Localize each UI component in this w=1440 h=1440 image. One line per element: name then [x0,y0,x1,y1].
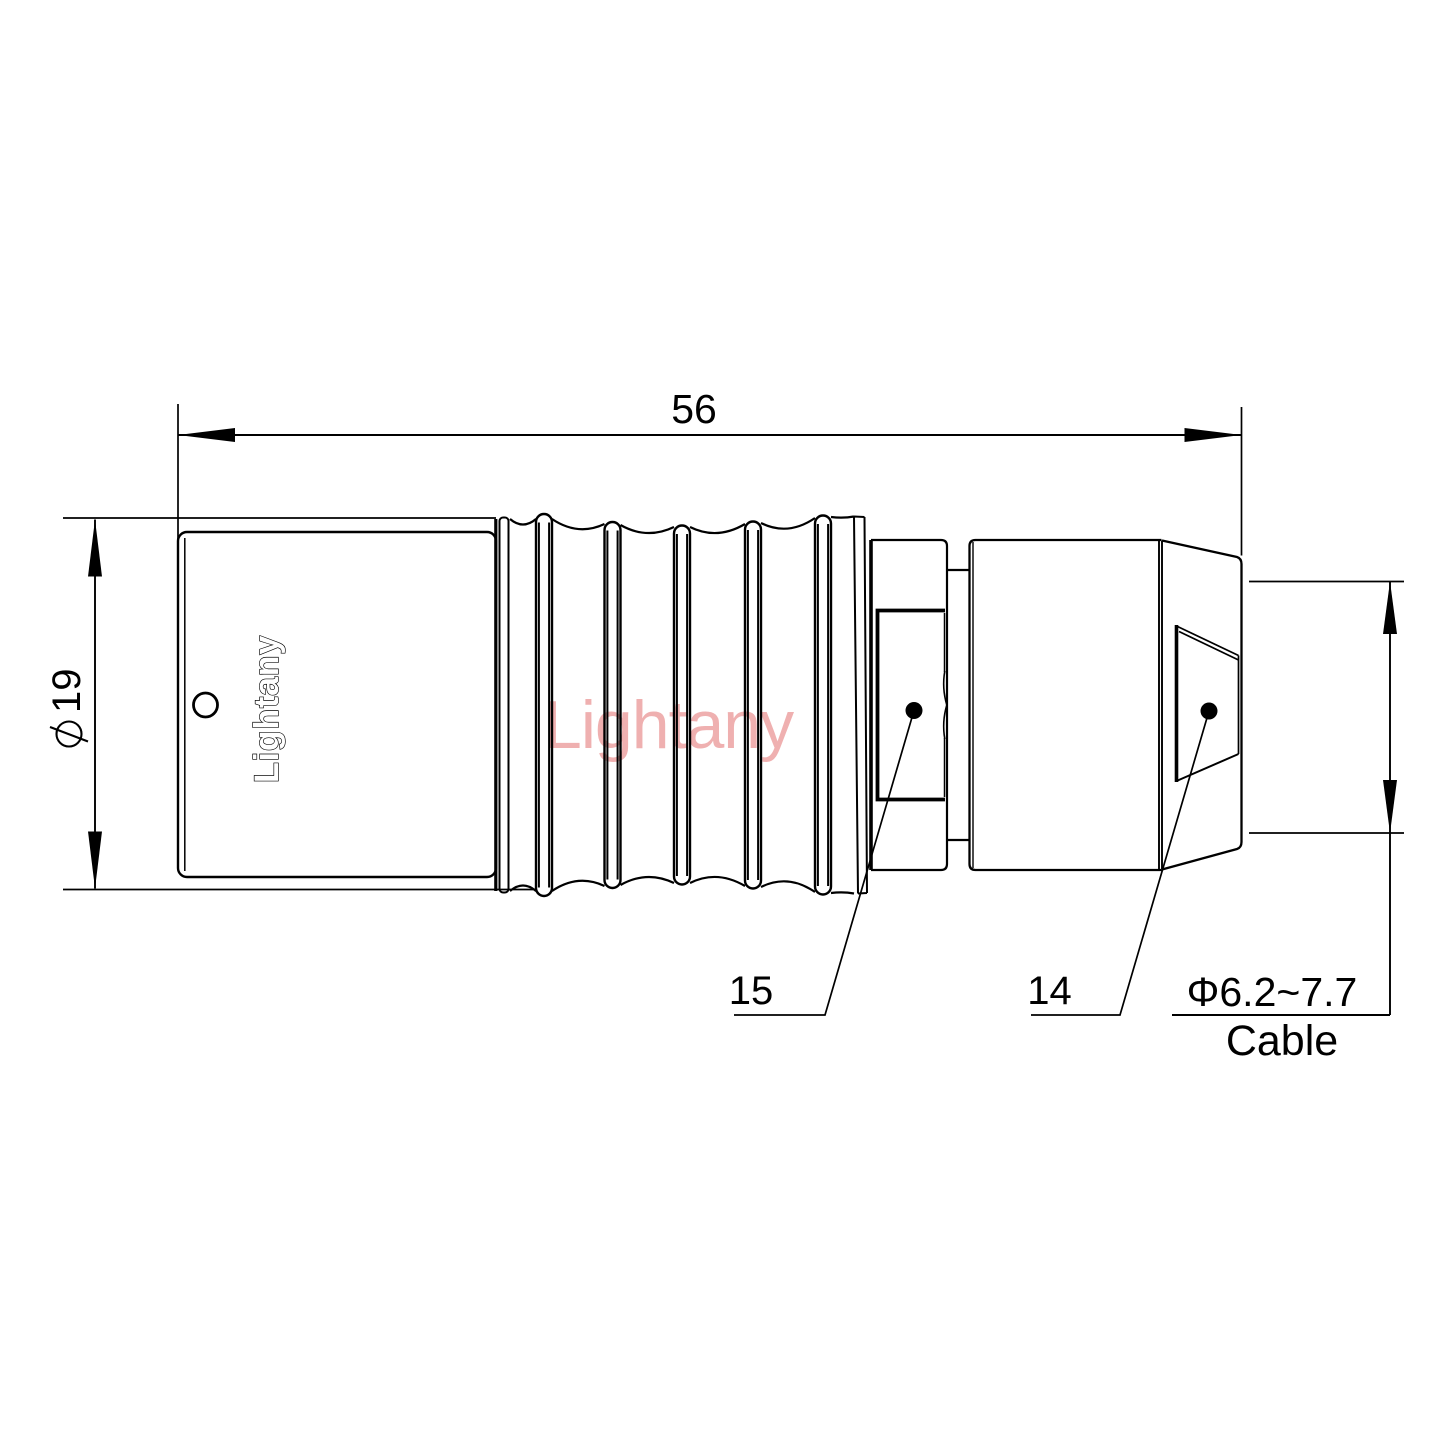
svg-text:56: 56 [671,386,717,432]
svg-text:Lightany: Lightany [544,687,794,763]
svg-text:15: 15 [729,969,774,1013]
svg-text:Φ6.2~7.7: Φ6.2~7.7 [1187,969,1358,1015]
svg-text:Cable: Cable [1226,1017,1338,1065]
svg-text:14: 14 [1027,969,1072,1013]
svg-text:19: 19 [45,669,89,714]
svg-text:Lightany: Lightany [248,635,286,783]
